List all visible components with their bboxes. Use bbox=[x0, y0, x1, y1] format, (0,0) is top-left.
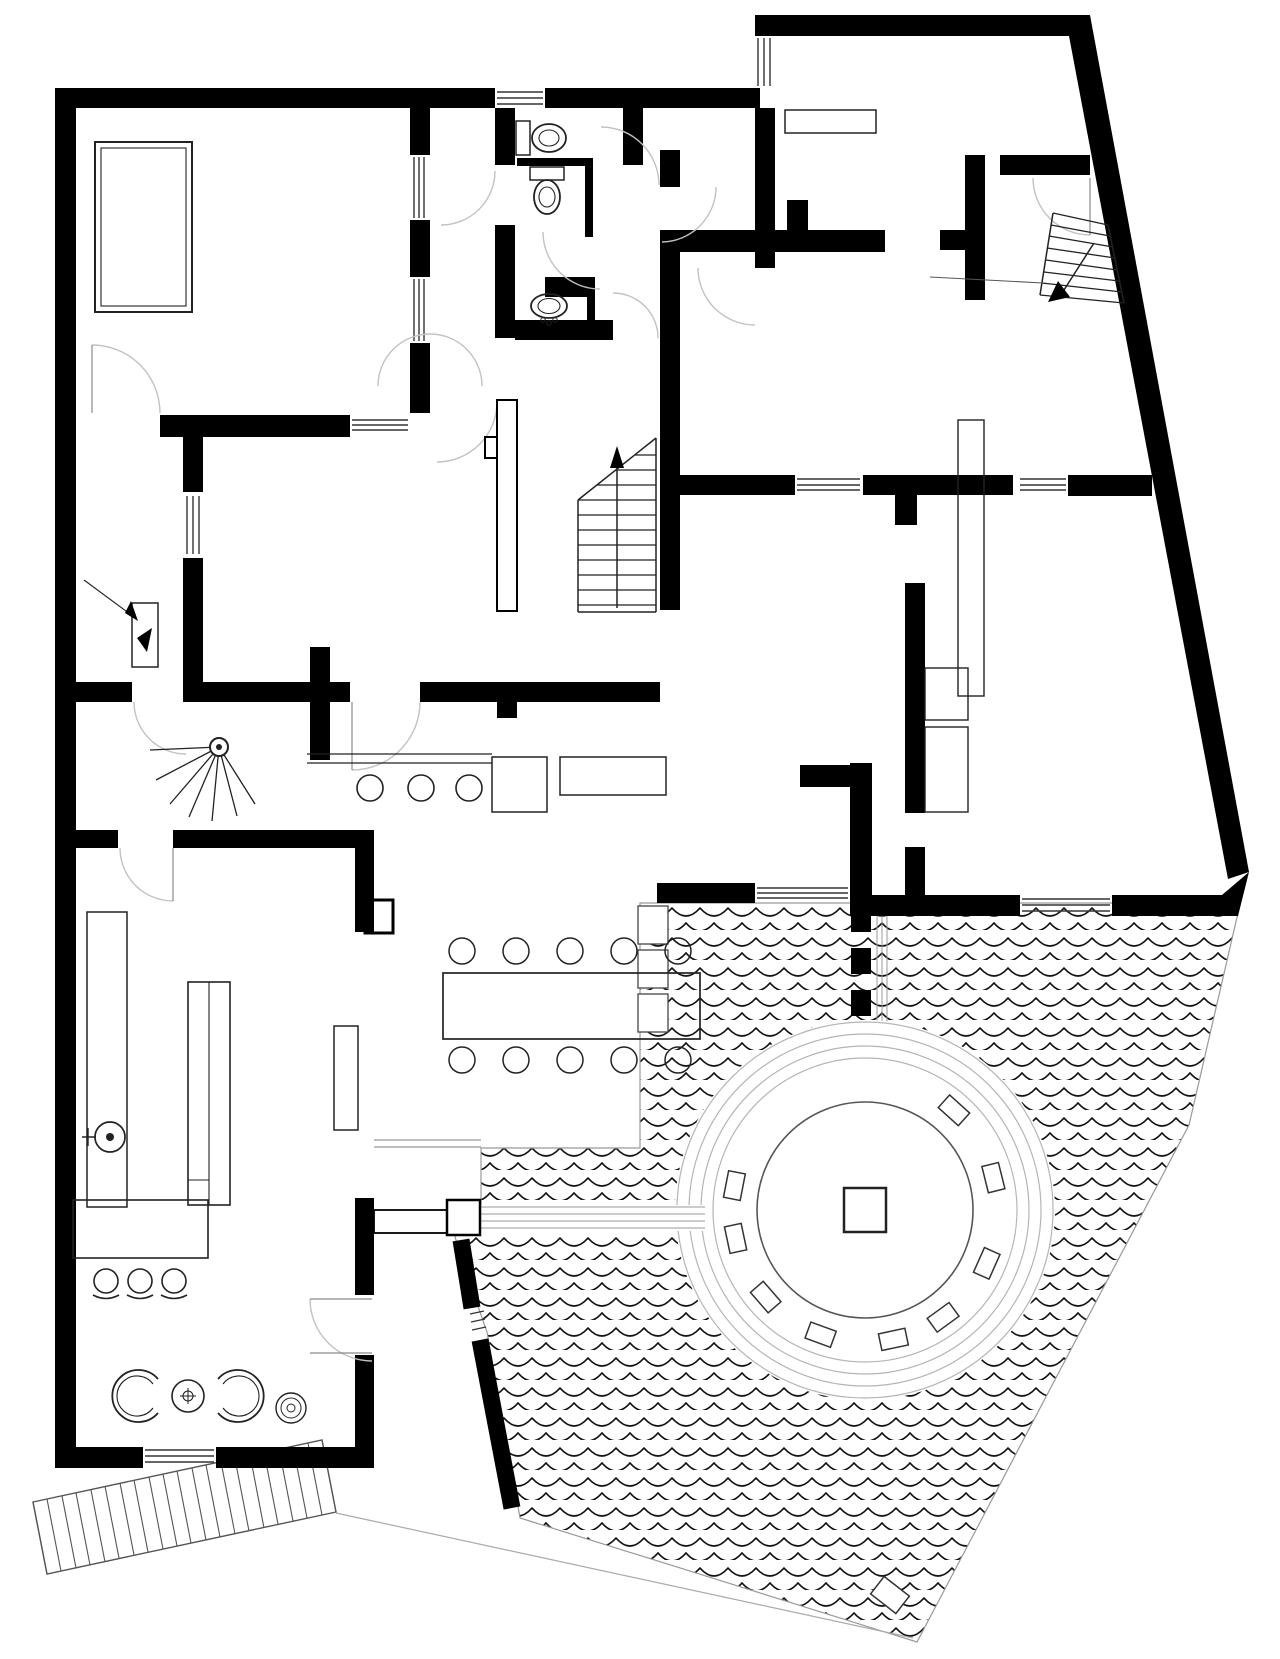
wall bbox=[76, 830, 118, 848]
chair bbox=[611, 938, 637, 964]
wall bbox=[787, 200, 808, 232]
wall bbox=[673, 230, 885, 252]
wall bbox=[55, 88, 76, 1468]
bar-counter bbox=[307, 754, 492, 763]
wall bbox=[495, 108, 515, 165]
wall bbox=[587, 277, 595, 327]
wall bbox=[1000, 155, 1090, 175]
kitchen-stool bbox=[94, 1269, 118, 1293]
window bbox=[145, 1450, 214, 1462]
stair-arrow-head bbox=[610, 446, 624, 468]
wall bbox=[585, 163, 593, 237]
stair-partition bbox=[497, 400, 517, 611]
washbasin bbox=[538, 299, 560, 314]
wall bbox=[1112, 895, 1228, 916]
wall bbox=[183, 415, 203, 492]
wall bbox=[183, 558, 203, 702]
sideboard bbox=[560, 757, 666, 795]
spiral-stair-steps bbox=[150, 747, 255, 821]
window bbox=[414, 157, 424, 218]
fireplace-mark bbox=[137, 628, 152, 652]
toilet-tank bbox=[516, 121, 530, 155]
wall bbox=[355, 1198, 374, 1295]
door-arc bbox=[698, 268, 755, 325]
window bbox=[497, 92, 543, 104]
chair bbox=[503, 1047, 529, 1073]
wall bbox=[905, 583, 925, 813]
terrace-table bbox=[844, 1188, 886, 1232]
door-arc bbox=[441, 171, 495, 225]
bar-stool bbox=[456, 775, 482, 801]
wall bbox=[965, 155, 985, 300]
toilet-bowl bbox=[532, 124, 566, 152]
kitchen-tap bbox=[82, 1128, 96, 1146]
door-arc bbox=[352, 702, 420, 770]
bed bbox=[95, 142, 192, 312]
wall bbox=[497, 702, 517, 718]
wall bbox=[173, 830, 374, 848]
wall bbox=[495, 225, 515, 338]
door-arc bbox=[120, 848, 173, 901]
door-arc bbox=[613, 293, 658, 338]
chair bbox=[557, 1047, 583, 1073]
window bbox=[757, 888, 848, 898]
toilet-bowl bbox=[539, 187, 555, 207]
bed bbox=[101, 148, 186, 306]
floor-plan-svg bbox=[0, 0, 1280, 1659]
wall bbox=[1068, 475, 1152, 496]
stairs bbox=[150, 213, 1124, 821]
wall bbox=[863, 475, 1013, 495]
wall bbox=[216, 1447, 372, 1468]
pool-steps bbox=[638, 994, 668, 1032]
wall bbox=[755, 15, 1090, 36]
pillar bbox=[447, 1200, 480, 1235]
window bbox=[758, 38, 770, 86]
parapet bbox=[374, 1210, 447, 1233]
pool-pier bbox=[851, 990, 871, 1016]
wall bbox=[905, 847, 925, 895]
door-arc bbox=[430, 334, 482, 386]
wardrobe bbox=[925, 727, 968, 812]
lounge-chair bbox=[112, 1370, 158, 1422]
wall bbox=[660, 475, 795, 495]
pool-steps bbox=[638, 906, 668, 944]
tall-cabinet bbox=[334, 1026, 358, 1130]
kitchen-bar bbox=[73, 1200, 208, 1258]
chair bbox=[449, 938, 475, 964]
chair bbox=[611, 1047, 637, 1073]
wall bbox=[76, 682, 132, 702]
kitchen-stool bbox=[162, 1269, 186, 1293]
spiral-stair-post bbox=[216, 744, 222, 750]
wall bbox=[850, 895, 1020, 916]
wall bbox=[515, 320, 613, 340]
toilet-tank bbox=[530, 167, 564, 180]
floor-plan-page bbox=[0, 0, 1280, 1659]
pool-wall bbox=[461, 1240, 472, 1308]
kitchen-stool-base bbox=[93, 1295, 187, 1299]
shelf bbox=[785, 110, 876, 133]
wall bbox=[657, 883, 755, 903]
side-table bbox=[287, 1404, 295, 1412]
bar-stool bbox=[357, 775, 383, 801]
wall bbox=[517, 158, 593, 166]
wall bbox=[800, 765, 855, 787]
wall bbox=[355, 1355, 374, 1468]
wall bbox=[310, 647, 330, 760]
wall bbox=[410, 220, 430, 277]
wardrobe bbox=[925, 668, 968, 720]
bar-stool bbox=[408, 775, 434, 801]
bar-cabinet bbox=[492, 757, 547, 812]
window bbox=[352, 420, 408, 430]
door-arc bbox=[134, 702, 186, 754]
door-arc bbox=[310, 1299, 372, 1361]
window bbox=[414, 279, 424, 341]
window bbox=[1020, 479, 1066, 490]
wall-slanted bbox=[1069, 15, 1249, 879]
wall bbox=[420, 682, 660, 702]
door-arc bbox=[92, 345, 160, 413]
kitchen-counter bbox=[87, 912, 127, 1207]
wall bbox=[545, 88, 760, 108]
chair bbox=[557, 938, 583, 964]
terrace-walk bbox=[481, 1205, 705, 1231]
window bbox=[187, 496, 199, 554]
washbasin bbox=[531, 294, 567, 318]
chair bbox=[503, 938, 529, 964]
stair-partition bbox=[485, 437, 497, 458]
walkway-edge bbox=[374, 1140, 481, 1147]
side-table bbox=[281, 1398, 301, 1418]
coffee-table bbox=[180, 1388, 196, 1404]
stair-landing-line bbox=[930, 277, 1043, 283]
lounge-chair bbox=[117, 1376, 153, 1416]
window bbox=[797, 479, 860, 490]
wall bbox=[895, 495, 917, 525]
pool-pier bbox=[851, 948, 871, 974]
wall bbox=[660, 230, 680, 495]
wardrobe bbox=[958, 420, 984, 696]
toilet-bowl bbox=[539, 130, 559, 146]
wall bbox=[410, 343, 430, 413]
wall bbox=[55, 88, 495, 108]
kitchen-stool bbox=[128, 1269, 152, 1293]
lounge-chair bbox=[223, 1376, 259, 1416]
wall bbox=[940, 230, 965, 250]
wall bbox=[55, 1447, 143, 1468]
toilet-bowl bbox=[534, 180, 560, 214]
chair bbox=[449, 1047, 475, 1073]
wall bbox=[660, 495, 680, 610]
wall bbox=[660, 150, 680, 187]
kitchen-sink bbox=[106, 1133, 114, 1141]
pool-steps bbox=[638, 950, 668, 988]
lounge-chair bbox=[218, 1370, 264, 1422]
wall bbox=[410, 108, 430, 155]
